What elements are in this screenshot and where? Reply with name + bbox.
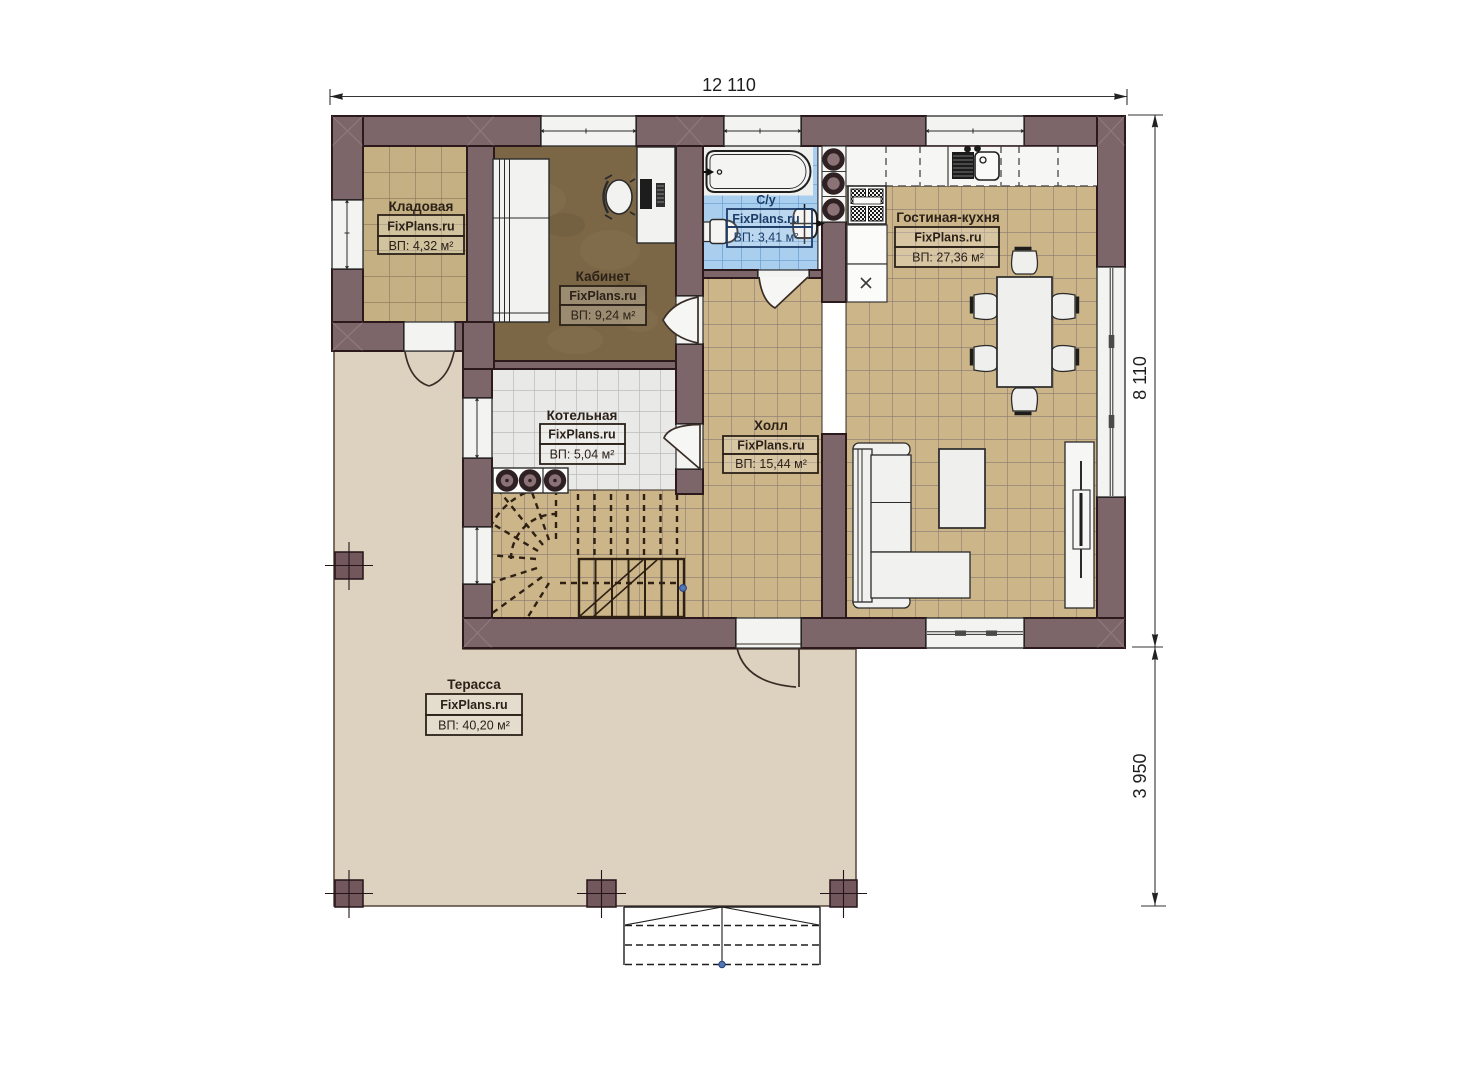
svg-text:FixPlans.ru: FixPlans.ru <box>569 289 636 303</box>
svg-text:ВП: 9,24 м²: ВП: 9,24 м² <box>571 309 636 323</box>
svg-text:Кабинет: Кабинет <box>576 269 631 284</box>
svg-text:FixPlans.ru: FixPlans.ru <box>737 439 804 453</box>
svg-text:ВП: 5,04 м²: ВП: 5,04 м² <box>550 448 615 462</box>
svg-text:С/у: С/у <box>756 193 776 207</box>
svg-text:ВП: 27,36 м²: ВП: 27,36 м² <box>912 251 984 265</box>
svg-text:ВП: 40,20 м²: ВП: 40,20 м² <box>438 719 510 733</box>
svg-text:FixPlans.ru: FixPlans.ru <box>548 428 615 442</box>
svg-text:FixPlans.ru: FixPlans.ru <box>387 220 454 234</box>
svg-text:Терасса: Терасса <box>447 677 501 692</box>
svg-text:8 110: 8 110 <box>1130 356 1150 400</box>
svg-text:ВП: 15,44 м²: ВП: 15,44 м² <box>735 457 807 471</box>
svg-text:Кладовая: Кладовая <box>389 199 454 214</box>
svg-text:12 110: 12 110 <box>702 75 756 95</box>
svg-text:FixPlans.ru: FixPlans.ru <box>732 212 799 226</box>
svg-text:3 950: 3 950 <box>1130 753 1150 798</box>
svg-text:ВП: 4,32 м²: ВП: 4,32 м² <box>389 239 454 253</box>
svg-text:FixPlans.ru: FixPlans.ru <box>914 231 981 245</box>
svg-text:Холл: Холл <box>754 418 788 433</box>
svg-text:Гостиная-кухня: Гостиная-кухня <box>896 210 999 225</box>
svg-text:ВП: 3,41 м²: ВП: 3,41 м² <box>734 231 799 245</box>
svg-text:Котельная: Котельная <box>547 408 618 423</box>
svg-text:FixPlans.ru: FixPlans.ru <box>440 698 507 712</box>
